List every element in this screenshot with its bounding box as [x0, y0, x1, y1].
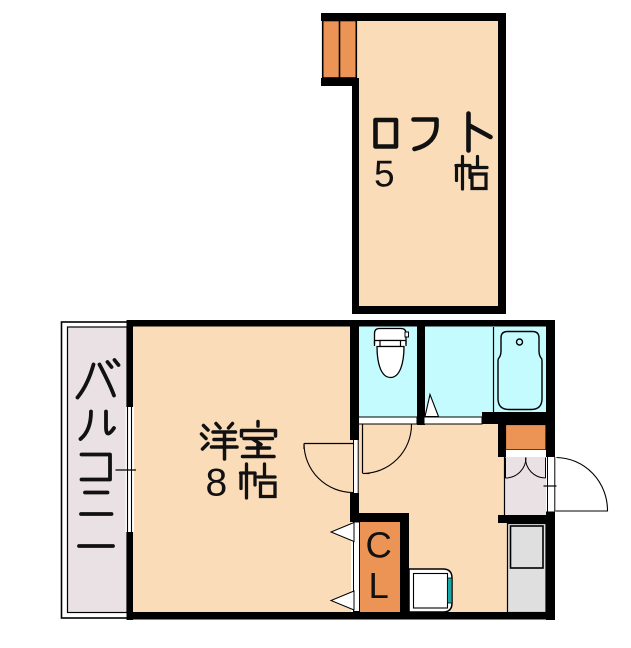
svg-text:8: 8: [206, 462, 228, 505]
svg-text:5: 5: [374, 154, 395, 195]
svg-text:C: C: [366, 525, 392, 566]
svg-text:L: L: [369, 565, 389, 606]
